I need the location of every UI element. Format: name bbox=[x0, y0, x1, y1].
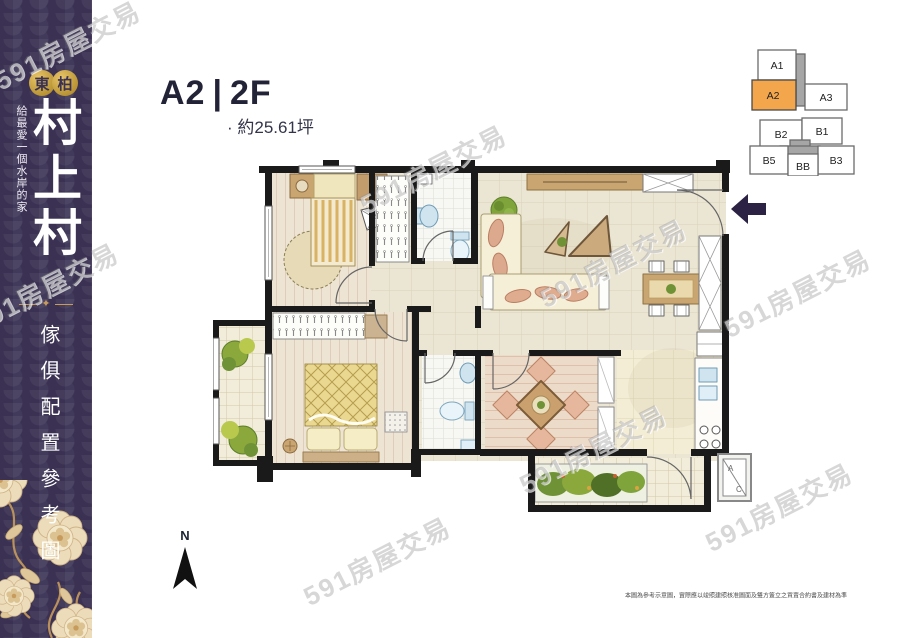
bath2-sink bbox=[460, 363, 476, 383]
vanity-mirror bbox=[296, 180, 308, 192]
keyplan-label-b1: B1 bbox=[816, 126, 829, 138]
north-arrow-icon bbox=[170, 545, 200, 591]
keyplan-label-a3: A3 bbox=[820, 92, 833, 104]
entrance-arrow-icon bbox=[731, 193, 767, 225]
watermark: 591房屋交易 bbox=[296, 507, 457, 613]
north-compass: N bbox=[168, 528, 202, 596]
brand-sidebar: 東 柏 給最愛一個水岸的家 村上村 ✦ 傢俱配置參考圖 bbox=[0, 0, 92, 638]
keyplan-core bbox=[796, 54, 805, 106]
bed2-headboard bbox=[314, 174, 355, 200]
floorplan: A C bbox=[213, 158, 773, 520]
pillow bbox=[344, 428, 377, 450]
dresser-2 bbox=[385, 412, 407, 432]
ac-label-a: A bbox=[728, 464, 734, 473]
sofa-armrest bbox=[483, 276, 493, 309]
keyplan-label-b5: B5 bbox=[763, 155, 776, 167]
master-wardrobe bbox=[273, 313, 365, 339]
disclaimer-text: 本圖為參考示意圖，實際應以竣照建照核准圖面及雙方簽立之買賣合約書及建材為準 bbox=[625, 591, 845, 600]
keyplan-label-bb: BB bbox=[796, 161, 810, 173]
pillow bbox=[307, 428, 340, 450]
page: 東 柏 給最愛一個水岸的家 村上村 ✦ 傢俱配置參考圖 bbox=[0, 0, 900, 638]
brand-badge: 東 柏 bbox=[29, 70, 78, 96]
tall-cabinet bbox=[699, 236, 721, 330]
bath1-sink bbox=[420, 205, 438, 227]
bath2-fixture bbox=[461, 440, 477, 450]
project-name: 村上村 bbox=[29, 97, 78, 262]
headboard bbox=[303, 452, 379, 462]
kitchen-sink2 bbox=[699, 386, 717, 400]
title-divider: | bbox=[212, 74, 223, 112]
unit-code: A2 bbox=[160, 74, 205, 112]
bath1-cabinet bbox=[418, 174, 432, 184]
bath1-toilet-tank bbox=[451, 232, 469, 240]
plan-caption: 傢俱配置參考圖 bbox=[34, 324, 63, 576]
keyplan: A1 A2 A3 B2 B1 B5 BB B3 bbox=[742, 44, 860, 176]
ac-outdoor-unit: A C bbox=[718, 454, 751, 501]
area-label: · 約25.61坪 bbox=[227, 113, 314, 138]
north-label: N bbox=[168, 528, 202, 543]
bath2-toilet bbox=[440, 402, 464, 420]
floor-code: 2F bbox=[230, 74, 272, 112]
badge-coin: 柏 bbox=[52, 70, 78, 96]
keyplan-label-b2: B2 bbox=[775, 129, 788, 141]
table-plant bbox=[557, 237, 567, 247]
keyplan-label-b3: B3 bbox=[830, 155, 843, 167]
single-bed bbox=[311, 198, 355, 266]
divider-ornament: ✦ bbox=[0, 297, 92, 310]
keyplan-label-a2: A2 bbox=[767, 90, 780, 102]
kitchen-sink bbox=[699, 368, 717, 382]
ac-label-c: C bbox=[736, 485, 742, 494]
flower-bed bbox=[535, 464, 647, 502]
bath2-toilet-tank bbox=[465, 402, 474, 420]
keyplan-label-a1: A1 bbox=[771, 60, 784, 72]
sofa-armrest bbox=[599, 276, 609, 309]
wardrobe-closet bbox=[376, 176, 409, 262]
page-title: A2|2F bbox=[160, 74, 272, 113]
